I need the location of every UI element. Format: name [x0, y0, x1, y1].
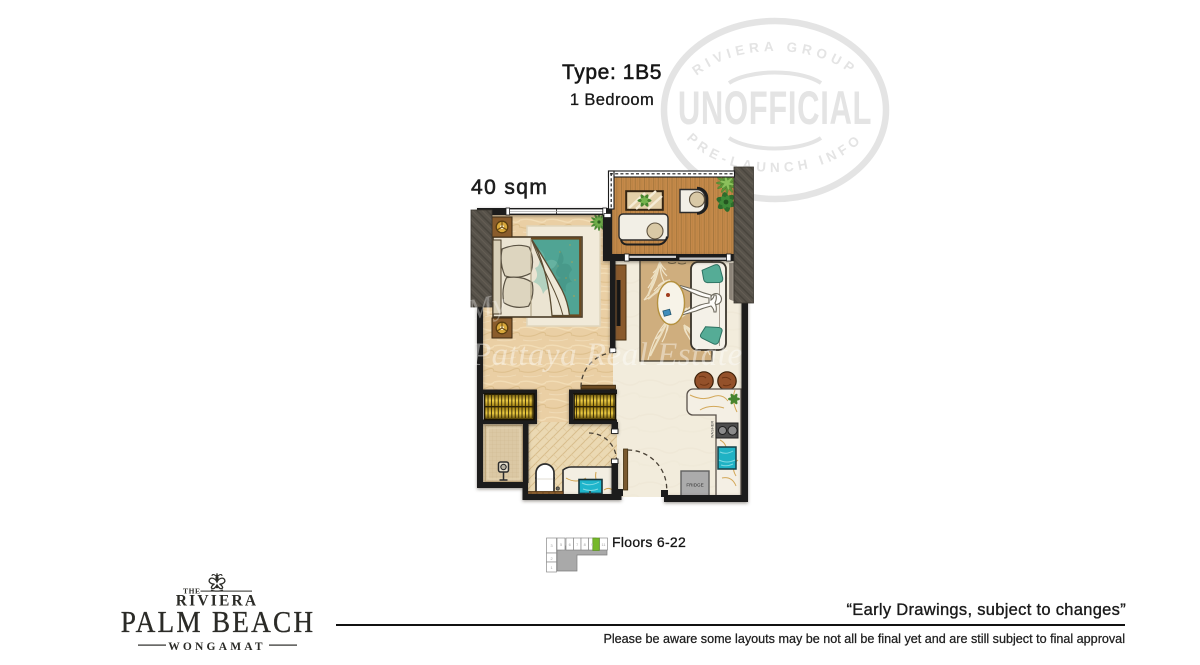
- svg-text:5: 5: [560, 543, 562, 547]
- svg-text:3: 3: [550, 544, 552, 548]
- svg-text:PALM BEACH: PALM BEACH: [121, 605, 316, 639]
- svg-text:8: 8: [584, 543, 586, 547]
- svg-text:FRIDGE: FRIDGE: [686, 483, 703, 488]
- svg-text:Pattaya Real Estate: Pattaya Real Estate: [470, 337, 743, 373]
- svg-text:9: 9: [591, 543, 593, 547]
- svg-text:1: 1: [550, 566, 552, 570]
- svg-text:WASHER: WASHER: [711, 420, 715, 438]
- svg-text:7: 7: [576, 543, 578, 547]
- svg-text:WONGAMAT: WONGAMAT: [168, 641, 266, 653]
- svg-text:2: 2: [550, 557, 552, 561]
- svg-text:6: 6: [569, 543, 571, 547]
- svg-text:11: 11: [602, 543, 606, 547]
